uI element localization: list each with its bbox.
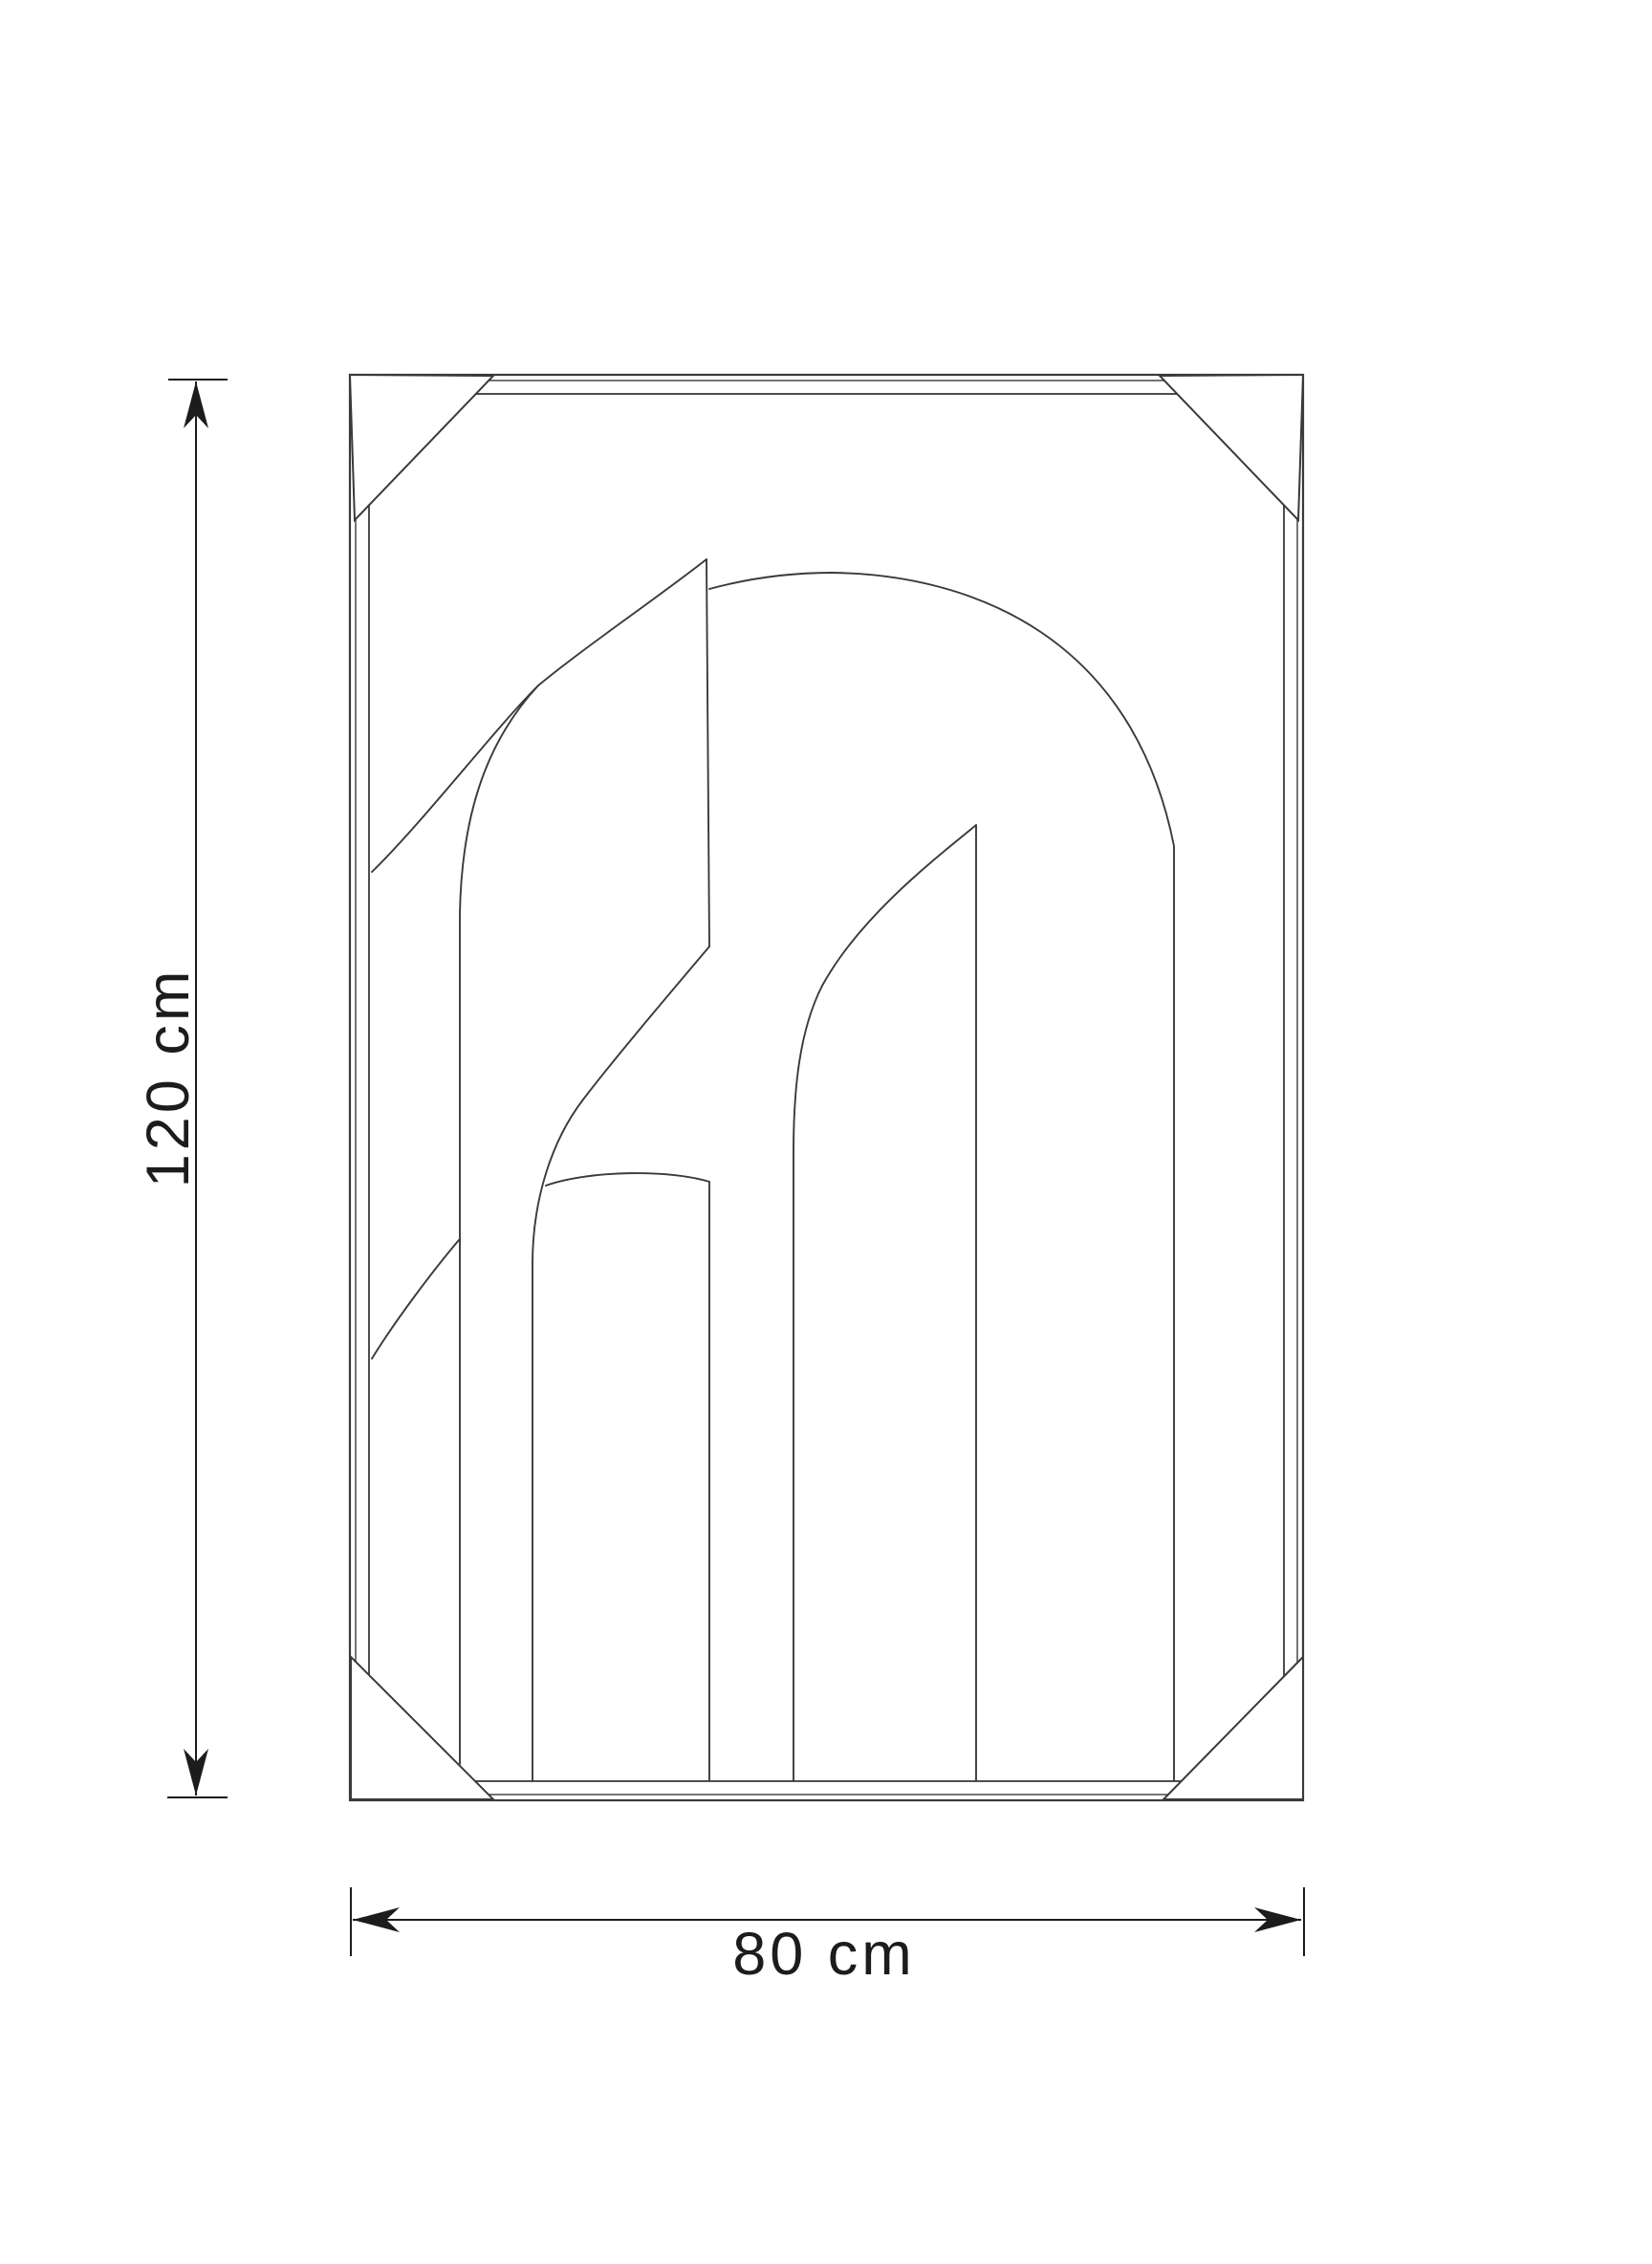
frame-mid-edge bbox=[356, 381, 1297, 1795]
artwork-center-sail-left-edge bbox=[793, 825, 976, 1780]
dimension-drawing-svg: 120 cm 80 cm bbox=[0, 0, 1652, 2264]
vertical-dimension: 120 cm bbox=[135, 380, 228, 1797]
artwork-tall-sail-left-edge bbox=[460, 559, 706, 1764]
frame bbox=[350, 375, 1303, 1800]
artwork-tall-sail-right-edge bbox=[706, 559, 709, 947]
corner-brackets bbox=[350, 375, 1303, 1799]
height-label: 120 cm bbox=[135, 968, 202, 1188]
artwork-big-arch-line bbox=[709, 573, 1174, 1780]
artwork-sweep-curve bbox=[533, 947, 709, 1780]
corner-bracket-top-left bbox=[350, 375, 493, 520]
artwork bbox=[372, 559, 1174, 1780]
width-label: 80 cm bbox=[732, 1921, 916, 1988]
corner-bracket-bottom-right bbox=[1163, 1657, 1303, 1799]
artwork-column-arc bbox=[546, 1173, 709, 1780]
dimension-drawing-page: 120 cm 80 cm bbox=[0, 0, 1652, 2264]
horizontal-dimension: 80 cm bbox=[351, 1887, 1304, 1988]
frame-outer-edge bbox=[350, 375, 1303, 1800]
frame-inner-edge bbox=[369, 394, 1284, 1781]
corner-bracket-top-right bbox=[1160, 375, 1303, 520]
corner-bracket-bottom-left bbox=[351, 1657, 493, 1799]
artwork-left-sliver-upper bbox=[372, 686, 538, 872]
artwork-left-sliver-lower bbox=[372, 1240, 459, 1359]
